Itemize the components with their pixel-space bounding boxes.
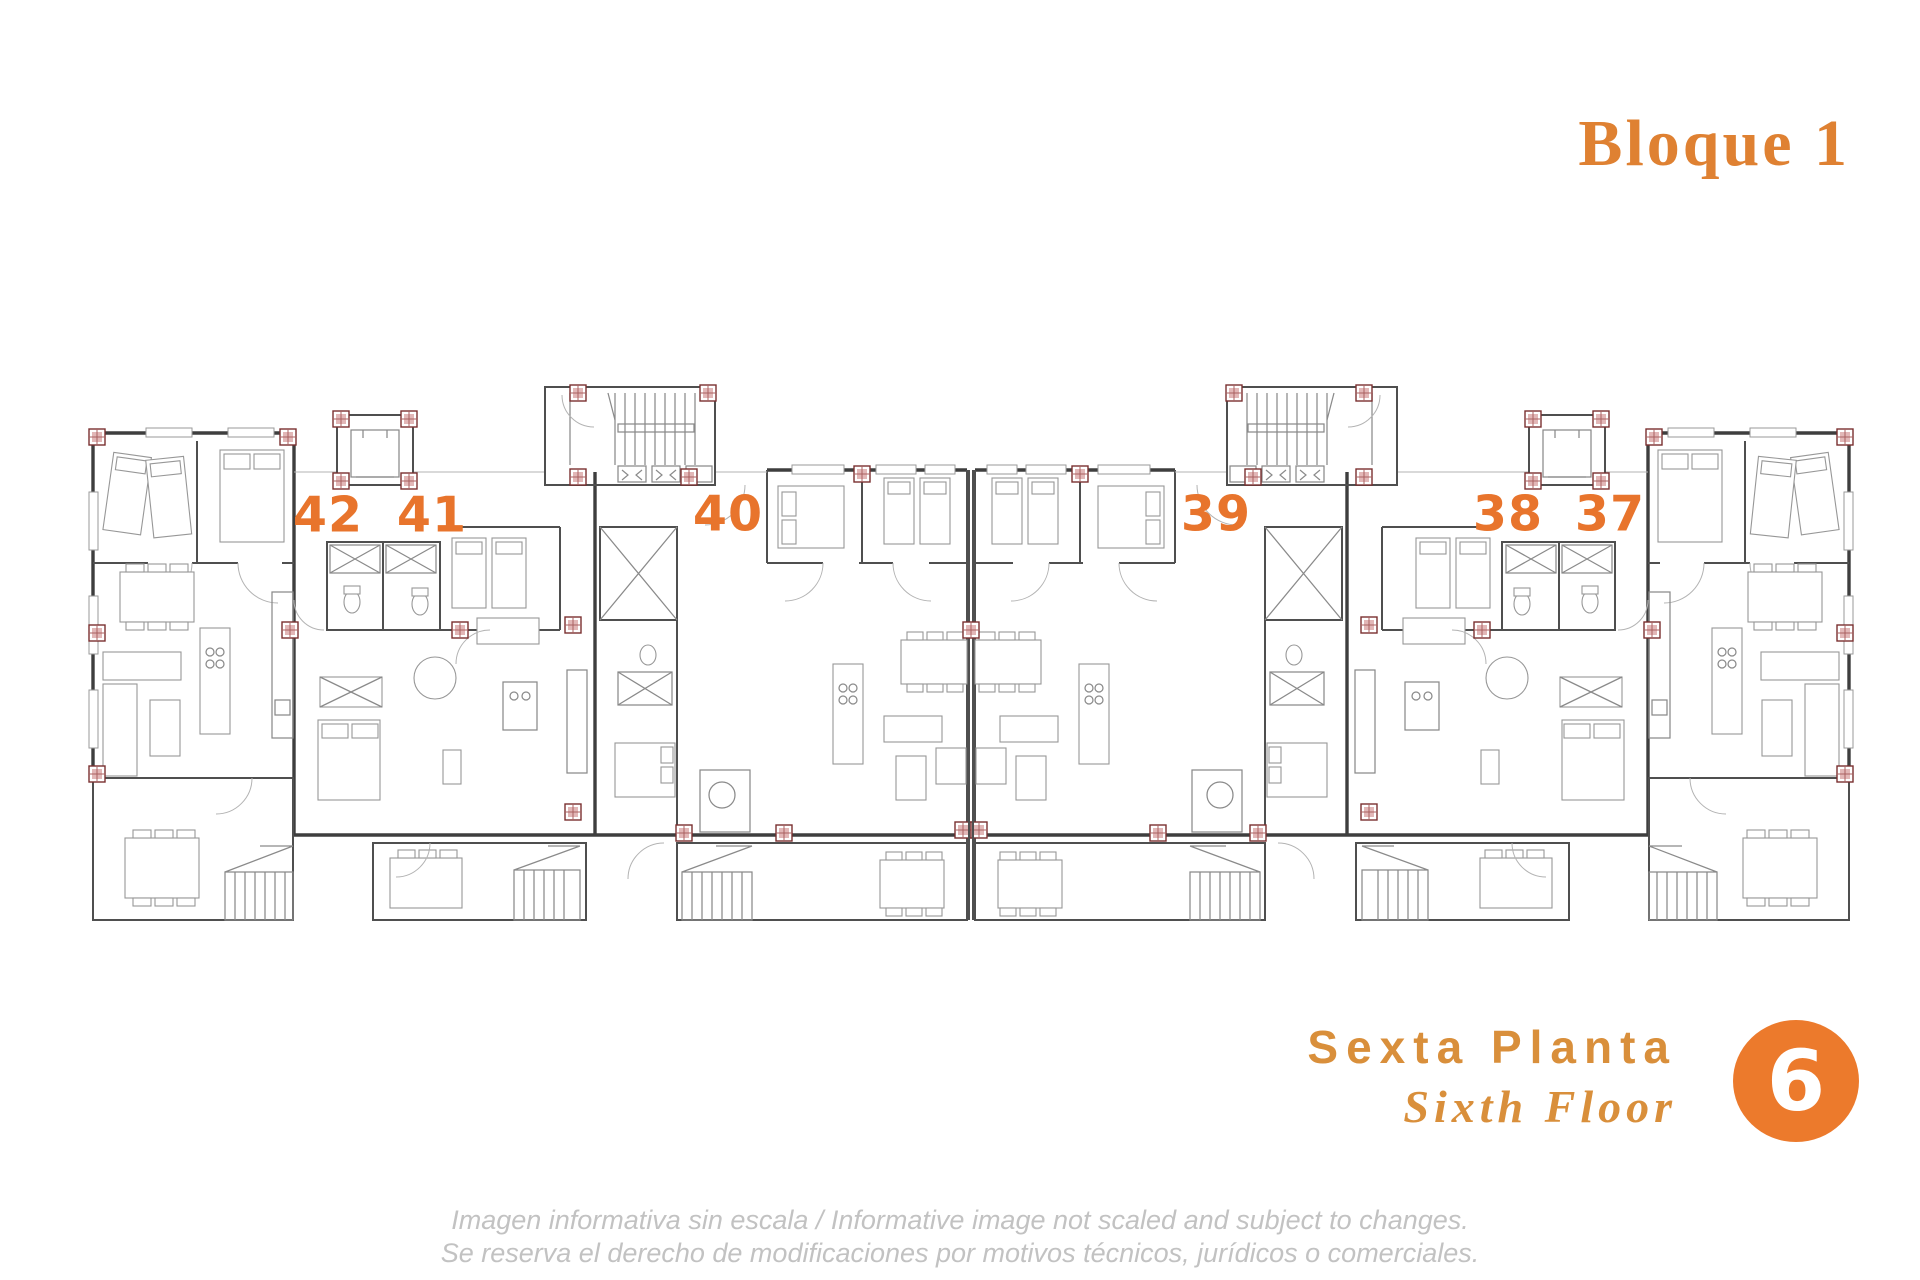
unit-number-42: 42: [293, 487, 363, 544]
floor-label: Sexta Planta Sixth Floor: [1307, 1020, 1677, 1133]
disclaimer-line-1: Imagen informativa sin escala / Informat…: [0, 1204, 1920, 1237]
unit-number-40: 40: [693, 486, 763, 543]
unit-number-38: 38: [1473, 486, 1543, 543]
disclaimer: Imagen informativa sin escala / Informat…: [0, 1204, 1920, 1271]
elevator-shaft: [333, 411, 417, 489]
unit-42-living: [103, 564, 293, 776]
terrace-stair: [225, 846, 752, 920]
floor-name-english: Sixth Floor: [1307, 1080, 1677, 1133]
unit-number-37: 37: [1575, 486, 1645, 543]
unit-number-41: 41: [397, 487, 467, 544]
floor-number: 6: [1767, 1032, 1825, 1130]
unit-number-39: 39: [1181, 486, 1251, 543]
unit-40: [615, 470, 967, 835]
center-party-wall: [963, 470, 979, 920]
stair-core: [545, 385, 716, 485]
unit-41: [294, 527, 587, 800]
disclaimer-line-2: Se reserva el derecho de modificaciones …: [0, 1237, 1920, 1270]
floor-name-spanish: Sexta Planta: [1307, 1020, 1677, 1074]
light-well: [600, 527, 677, 620]
block-title: Bloque 1: [1578, 106, 1850, 182]
floor-number-badge: 6: [1733, 1020, 1859, 1142]
building-left-half: [89, 385, 971, 920]
terraces: [93, 778, 967, 920]
